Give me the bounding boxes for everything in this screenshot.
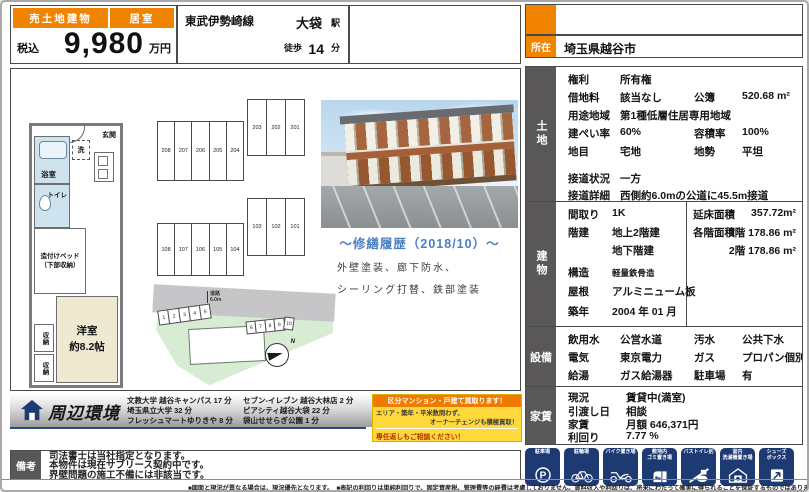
amenity-garbage-area: 敷地内 ゴミ置き場	[642, 448, 677, 486]
washer-label: 洗	[78, 145, 85, 155]
field-label: 権利	[568, 72, 589, 87]
field-value: 一方	[620, 171, 641, 186]
environment-column-2: セブン-イレブン 越谷大林店 2 分 ピアシティ越谷大袋 22 分 袋山せせらぎ…	[243, 396, 353, 426]
field-label: 階建	[568, 225, 589, 240]
room-number: 103	[252, 224, 261, 230]
compass-needle	[267, 349, 283, 360]
field-value: 地下階建	[612, 243, 654, 258]
rent-section: 家賃 現況賃貸中(満室) 引渡し日相談 家賃月額 646,371円 利回り7.7…	[525, 386, 803, 445]
main-room-size: 約8.2帖	[69, 340, 105, 356]
field-value: 2004 年 01 月	[612, 304, 677, 319]
floor2-rooms-right: 203 202 201	[248, 99, 305, 156]
station-name: 大袋	[296, 13, 322, 32]
facilities-section-label: 設備	[526, 327, 556, 386]
closet-a-label: 収納	[39, 332, 49, 345]
room-number: 107	[179, 247, 188, 253]
field-label: 築年	[568, 304, 589, 319]
field-value: ガス給湯器	[620, 368, 673, 383]
field-value: 西側約6.0mの公道に45.5m接道	[620, 188, 768, 201]
blank-header-box	[349, 5, 521, 64]
floor2-rooms-left: 208 207 206 205 204	[158, 121, 244, 181]
field-label: 飲用水	[568, 332, 600, 347]
plan-area: 玄関 洗 浴室 トイレ 造付けベッド （下部収納） 洋室 約8.2帖	[10, 68, 521, 391]
amenity-bicycle-parking: 駐輪場	[564, 448, 599, 486]
room-cell: 107	[174, 223, 192, 276]
toilet-label: トイレ	[48, 189, 68, 199]
field-label: 容積率	[694, 126, 726, 141]
stall-number: 5	[203, 309, 207, 315]
bicycle-parking-icon	[570, 468, 594, 483]
indoor-laundry-icon	[728, 468, 748, 483]
renovation-line-2: シーリング打替、鉄部塗装	[337, 281, 481, 296]
amenity-caption: 室内 洗濯機置き場	[722, 450, 752, 462]
land-rows: 権利所有権 借地料該当なし公簿520.68 m² 用途地域第1種低層住居専用地域…	[556, 67, 802, 201]
property-flyer: 売土地建物 居室 税込 9,980 万円 東武伊勢崎線 大袋 駅 徒歩 14 分…	[0, 0, 809, 492]
field-label: 汚水	[694, 332, 715, 347]
bath-room: 浴室	[34, 136, 70, 184]
field-value: アルミニューム板	[612, 284, 696, 299]
building-section-label: 建物	[526, 202, 556, 326]
amenity-caption: 敷地内 ゴミ置き場	[647, 450, 672, 462]
floor1-rooms-left: 108 107 106 105 104	[158, 223, 244, 276]
stall-number: 1	[162, 314, 166, 320]
field-label: 接道状況	[568, 171, 610, 186]
remarks-label: 備考	[11, 451, 41, 479]
remarks-section: 備考 司法書士は当社指定となります。 本物件は現在サブリース契約中です。 界壁問…	[10, 450, 521, 480]
room-cell: 204	[226, 121, 244, 181]
price-box: 売土地建物 居室 税込 9,980 万円	[10, 5, 177, 64]
room-cell: 103	[247, 198, 267, 256]
stall-number: 2	[172, 313, 176, 319]
amenity-badge-row: 駐車場 P 駐輪場 バイク置き場 敷地内 ゴミ置き場 バストイレ別 室内 洗濯機…	[525, 448, 803, 488]
room-cell: 201	[285, 99, 305, 156]
room-number: 203	[252, 125, 261, 131]
room-number: 106	[196, 247, 205, 253]
location-value: 埼玉県越谷市	[564, 40, 636, 57]
rail-line: 東武伊勢崎線	[185, 13, 254, 29]
field-value: 公共下水	[742, 332, 784, 347]
field-value: 第1種低層住居専用地域	[620, 108, 731, 123]
separate-bath-toilet-icon	[688, 468, 710, 483]
environment-item: セブン-イレブン 越谷大林店 2 分	[243, 396, 353, 406]
amenity-caption: 駐輪場	[574, 450, 589, 456]
environment-item: 文教大学 越谷キャンパス 17 分	[127, 396, 233, 406]
road-label: 道路 6.0m	[207, 291, 221, 303]
location-box: 所在 埼玉県越谷市	[525, 35, 803, 58]
photo-parking-lot	[321, 186, 518, 228]
environment-column-1: 文教大学 越谷キャンパス 17 分 埼玉県立大学 32 分 フレッシュマートゆり…	[127, 396, 233, 426]
building-section: 建物 間取り1K 階建地上2階建 地下階建 構造軽量鉄骨造 屋根アルミニューム板…	[525, 201, 803, 327]
location-label: 所在	[526, 36, 556, 57]
footer-disclaimer: ■図面と現況が異なる場合は、現況優先となります。 ■表記の利回りは単純利回りで、…	[188, 483, 809, 492]
renovation-line-1: 外壁塗装、廊下防水、	[337, 259, 457, 274]
kitchen-counter	[94, 152, 114, 182]
footer-divider	[2, 479, 807, 480]
field-label: 電気	[568, 350, 589, 365]
room-cell: 203	[247, 99, 267, 156]
environment-item: 袋山せせらぎ公園 1 分	[243, 416, 353, 426]
stall-number: 9	[278, 321, 281, 327]
rent-rows: 現況賃貸中(満室) 引渡し日相談 家賃月額 646,371円 利回り7.77 %	[556, 387, 802, 444]
amenity-shoe-box: シューズ ボックス	[759, 448, 794, 486]
room-number: 108	[162, 247, 171, 253]
main-room-label: 洋室	[77, 324, 98, 340]
built-in-bed: 造付けベッド （下部収納）	[34, 228, 86, 294]
stall-number: 6	[250, 324, 253, 330]
photo-building	[344, 104, 517, 192]
room-cell: 106	[191, 223, 209, 276]
field-value: 60%	[620, 126, 641, 138]
station-suffix: 駅	[331, 16, 340, 29]
room-number: 206	[196, 148, 205, 154]
field-label: 現況	[568, 390, 589, 405]
walk-unit: 分	[331, 41, 340, 54]
amenity-caption: 駐車場	[535, 450, 550, 456]
exterior-photo	[321, 100, 518, 228]
stall-number: 7	[259, 323, 262, 329]
room-number: 101	[290, 224, 299, 230]
sale-type-badge: 売土地建物	[13, 8, 108, 28]
facilities-rows: 飲用水公営水道汚水公共下水 電気東京電力ガスプロパン個別方 給湯ガス給湯器駐車場…	[556, 327, 802, 386]
field-label: 借地料	[568, 90, 600, 105]
field-value: 1階 178.86 m²	[729, 225, 796, 240]
compass-north-label: N	[291, 339, 295, 345]
amenity-caption: バイク置き場	[606, 450, 636, 456]
shoe-box-icon	[769, 468, 785, 483]
field-label: 利回り	[568, 430, 600, 444]
stall-number: 3	[183, 311, 187, 317]
price-unit: 万円	[149, 40, 171, 56]
room-cell: 202	[266, 99, 286, 156]
building-area-subbox: 延床面積357.72m² 各階面積1階 178.86 m² 2階 178.86 …	[686, 202, 802, 326]
bed-label-1: 造付けベッド	[41, 252, 80, 261]
room-cell: 101	[285, 198, 305, 256]
environment-title: 周辺環境	[48, 399, 120, 424]
stall-number: 8	[268, 322, 271, 328]
closet-b-label: 収納	[39, 362, 49, 375]
field-label: 公簿	[694, 90, 715, 105]
field-value: 地上2階建	[612, 225, 660, 240]
room-cell: 208	[157, 121, 175, 181]
bathtub-shape	[39, 141, 67, 159]
amenity-motorbike-parking: バイク置き場	[603, 448, 638, 486]
remarks-lines: 司法書士は当社指定となります。 本物件は現在サブリース契約中です。 界壁問題の施…	[49, 452, 210, 480]
field-label: 地目	[568, 144, 589, 159]
main-room: 洋室 約8.2帖	[56, 296, 118, 383]
building-rows: 間取り1K 階建地上2階建 地下階建 構造軽量鉄骨造 屋根アルミニューム板 築年…	[556, 202, 802, 326]
parking-stall: 5	[198, 303, 211, 319]
closet-a: 収納	[34, 324, 54, 352]
room-cell: 105	[209, 223, 227, 276]
room-number: 105	[213, 247, 222, 253]
header-right-orange-cell	[526, 5, 556, 34]
stove-burner	[98, 156, 108, 166]
ad-line-1: エリア・築年・平米数問わず、	[376, 408, 518, 417]
parking-stall: 10	[283, 316, 295, 330]
room-number: 102	[271, 224, 280, 230]
bath-label: 浴室	[41, 169, 56, 180]
rent-section-label: 家賃	[526, 387, 556, 444]
room-type-badge: 居室	[110, 8, 174, 28]
field-label: 給湯	[568, 368, 589, 383]
price-value: 9,980	[64, 27, 144, 61]
room-cell: 108	[157, 223, 175, 276]
room-number: 201	[290, 125, 299, 131]
washer-space: 洗	[72, 140, 90, 160]
field-value: 平坦	[742, 144, 763, 159]
sale-type-strip: 売土地建物 居室	[13, 8, 174, 28]
field-value: 1K	[612, 207, 625, 219]
photo-parking-lines	[321, 186, 518, 228]
field-label: 駐車場	[694, 368, 726, 383]
field-value: 所有権	[620, 72, 652, 87]
field-value: 520.68 m²	[742, 90, 790, 102]
compass: N	[265, 343, 289, 367]
ad-body: エリア・築年・平米数問わず、 オーナーチェンジも積極買取！ 専任返しもご相談くだ…	[373, 407, 521, 441]
room-number: 104	[230, 247, 239, 253]
amenity-indoor-laundry: 室内 洗濯機置き場	[720, 448, 755, 486]
purchase-ad-box: 区分マンション・戸建て買取ります！ エリア・築年・平米数問わず、 オーナーチェン…	[373, 395, 521, 441]
toilet-room: トイレ	[34, 184, 70, 228]
closet-b: 収納	[34, 354, 54, 382]
field-label: 延床面積	[693, 207, 735, 222]
floor1-rooms-right: 103 102 101	[248, 198, 305, 256]
room-cell: 104	[226, 223, 244, 276]
amenity-caption: バストイレ別	[683, 450, 713, 456]
field-value: 公営水道	[620, 332, 662, 347]
room-cell: 206	[191, 121, 209, 181]
walk-label: 徒歩	[284, 41, 302, 54]
amenity-parking: 駐車場 P	[525, 448, 560, 486]
room-cell: 102	[266, 198, 286, 256]
amenity-caption: シューズ ボックス	[767, 450, 787, 462]
field-value: 軽量鉄骨造	[612, 267, 655, 279]
room-cell: 205	[209, 121, 227, 181]
field-label: ガス	[694, 350, 715, 365]
entrance-label: 玄関	[102, 130, 116, 140]
environment-item: ピアシティ越谷大袋 22 分	[243, 406, 353, 416]
environment-underline	[10, 427, 366, 429]
room-number: 207	[179, 148, 188, 154]
motorbike-parking-icon	[609, 469, 633, 483]
facilities-section: 設備 飲用水公営水道汚水公共下水 電気東京電力ガスプロパン個別方 給湯ガス給湯器…	[525, 326, 803, 387]
field-value: 100%	[742, 126, 769, 138]
field-value: 7.77 %	[626, 430, 659, 442]
land-section-label: 土地	[526, 67, 556, 201]
environment-item: 埼玉県立大学 32 分	[127, 406, 233, 416]
land-section: 土地 権利所有権 借地料該当なし公簿520.68 m² 用途地域第1種低層住居専…	[525, 66, 803, 202]
stall-number: 10	[286, 320, 292, 327]
field-label: 接道詳細	[568, 188, 610, 201]
field-label: 構造	[568, 265, 589, 280]
room-number: 205	[213, 148, 222, 154]
field-value: 該当なし	[620, 90, 662, 105]
header-right-top-box	[525, 4, 803, 35]
tax-label: 税込	[17, 40, 39, 56]
renovation-title: ～修繕履歴（2018/10）～	[321, 233, 518, 252]
field-label: 用途地域	[568, 108, 610, 123]
field-label: 間取り	[568, 207, 600, 222]
ad-line-2: オーナーチェンジも積極買取！	[376, 417, 518, 426]
field-value: プロパン個別方	[742, 350, 802, 365]
parking-icon: P	[534, 467, 552, 483]
field-value: 賃貸中(満室)	[626, 390, 686, 405]
amenity-separate-bath-toilet: バストイレ別	[681, 448, 716, 486]
field-label: 地勢	[694, 144, 715, 159]
sink-shape	[98, 169, 108, 179]
garbage-area-icon	[651, 469, 669, 483]
ad-header: 区分マンション・戸建て買取ります！	[373, 395, 521, 407]
field-value: 2階 178.86 m²	[729, 243, 796, 258]
room-number: 204	[230, 148, 239, 154]
field-value: 357.72m²	[751, 207, 796, 219]
access-box: 東武伊勢崎線 大袋 駅 徒歩 14 分	[177, 5, 349, 64]
walk-minutes: 14	[308, 41, 324, 57]
field-value: 東京電力	[620, 350, 662, 365]
house-icon	[20, 398, 44, 422]
stall-number: 4	[193, 310, 197, 316]
room-number: 202	[271, 125, 280, 131]
room-number: 208	[162, 148, 171, 154]
unit-floorplan: 玄関 洗 浴室 トイレ 造付けベッド （下部収納） 洋室 約8.2帖	[29, 123, 123, 388]
road-width-text: 6.0m	[210, 297, 221, 303]
environment-bar: 周辺環境 文教大学 越谷キャンパス 17 分 埼玉県立大学 32 分 フレッシュ…	[10, 394, 521, 427]
field-label: 屋根	[568, 284, 589, 299]
environment-item: フレッシュマートゆりきや 8 分	[127, 416, 233, 426]
bed-label-2: （下部収納）	[41, 261, 80, 270]
room-cell: 207	[174, 121, 192, 181]
field-label: 建ぺい率	[568, 126, 610, 141]
field-value: 有	[742, 368, 753, 383]
ad-line-3: 専任返しもご相談ください！	[376, 428, 518, 441]
field-value: 宅地	[620, 144, 641, 159]
